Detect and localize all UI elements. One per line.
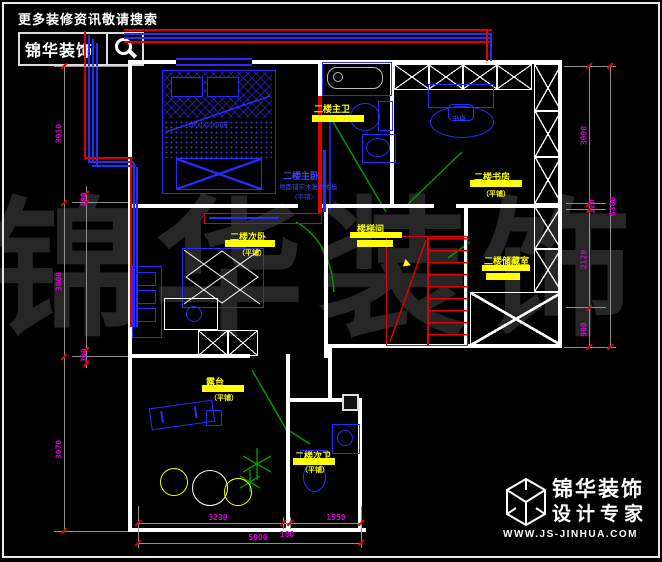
round-table [192,470,228,506]
dim-right-120: 120 [588,192,597,222]
dim-left-300: 300 [80,341,89,371]
faucet-icon [342,394,359,411]
wardrobe-x [534,156,562,204]
wardrobe-x [534,206,562,250]
room-finish-second-bedroom: （平铺） [238,248,266,258]
chair-circle [224,478,252,506]
wardrobe-x [534,64,562,112]
desk-label: 书桌 [452,114,466,124]
bed-label: 1800X2000床 [188,119,228,129]
second-chair [186,306,202,322]
storage-x-box [470,292,562,346]
room-finish-second-bath: （平铺） [301,465,329,475]
dim-bottom-5000: 5000 [238,533,278,542]
room-finish-study: （平铺） [482,189,510,199]
header-tagline: 更多装修资讯敬请搜索 [18,9,158,28]
wardrobe-x [534,248,562,292]
dim-right-3090: 3090 [580,121,589,151]
cad-floor-plan-page: 锦华装饰 更多装修资讯敬请搜索 锦华装饰 [0,0,662,562]
dim-bottom-1550: 1550 [316,513,356,522]
wardrobe [132,266,162,338]
room-finish-master-bedroom: （平铺） [291,191,317,201]
x-box [228,330,258,356]
cabinet-x [496,64,532,90]
dim-left-3010: 3010 [55,119,64,149]
chair-circle [160,468,188,496]
sink [362,134,396,163]
pillow [207,77,239,97]
cabinet-x [394,64,430,90]
dim-left-180: 180 [80,185,89,215]
toilet-tank [378,101,393,131]
footer-brand-url: WWW.JS-JINHUA.COM [503,529,638,540]
radiator [204,213,322,224]
wardrobe-x [534,110,562,158]
dim-right-900: 900 [580,315,589,345]
dim-left-3000: 3000 [55,267,64,297]
bathtub [322,62,392,96]
pillow [171,77,203,97]
washing-machine [332,424,360,454]
x-box [198,330,228,356]
dim-right-6300: 6300 [609,192,618,222]
dim-left-3070: 3070 [55,435,64,465]
dim-bottom-3230: 3230 [198,513,238,522]
bed-bench [176,158,262,190]
footer-brand-tagline: 设计专家 [552,499,648,526]
cube-logo-icon [504,476,548,528]
room-note-master-bedroom: 地面铺实木复合地板 [279,181,338,191]
room-finish-terrace: （平铺） [210,393,238,403]
dim-right-2120: 2120 [580,245,589,275]
side-table [206,410,222,426]
room-label-master-bath: 二楼主卫 [314,102,350,115]
window [176,58,252,66]
